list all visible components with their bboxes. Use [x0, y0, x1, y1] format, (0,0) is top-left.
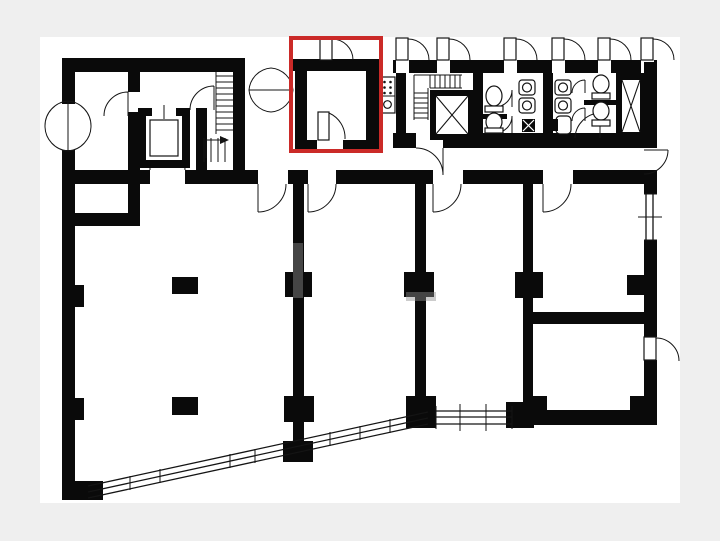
toilet-icon [592, 102, 610, 126]
washbasin-icon [519, 80, 535, 95]
toilet-icon [592, 75, 610, 99]
toilet-icon [485, 86, 503, 112]
washbasin-icon [555, 80, 571, 95]
toilet-icon [485, 113, 503, 133]
floor-plan-page [0, 0, 720, 541]
utility-shaft-icon [616, 73, 646, 138]
washbasin-icon [519, 98, 535, 113]
service-elevator-icon [430, 90, 474, 140]
passenger-elevator-icon [138, 105, 190, 168]
washbasin-icon [555, 98, 571, 113]
floor-drain-icon [522, 119, 535, 132]
floor-plan [0, 0, 720, 541]
